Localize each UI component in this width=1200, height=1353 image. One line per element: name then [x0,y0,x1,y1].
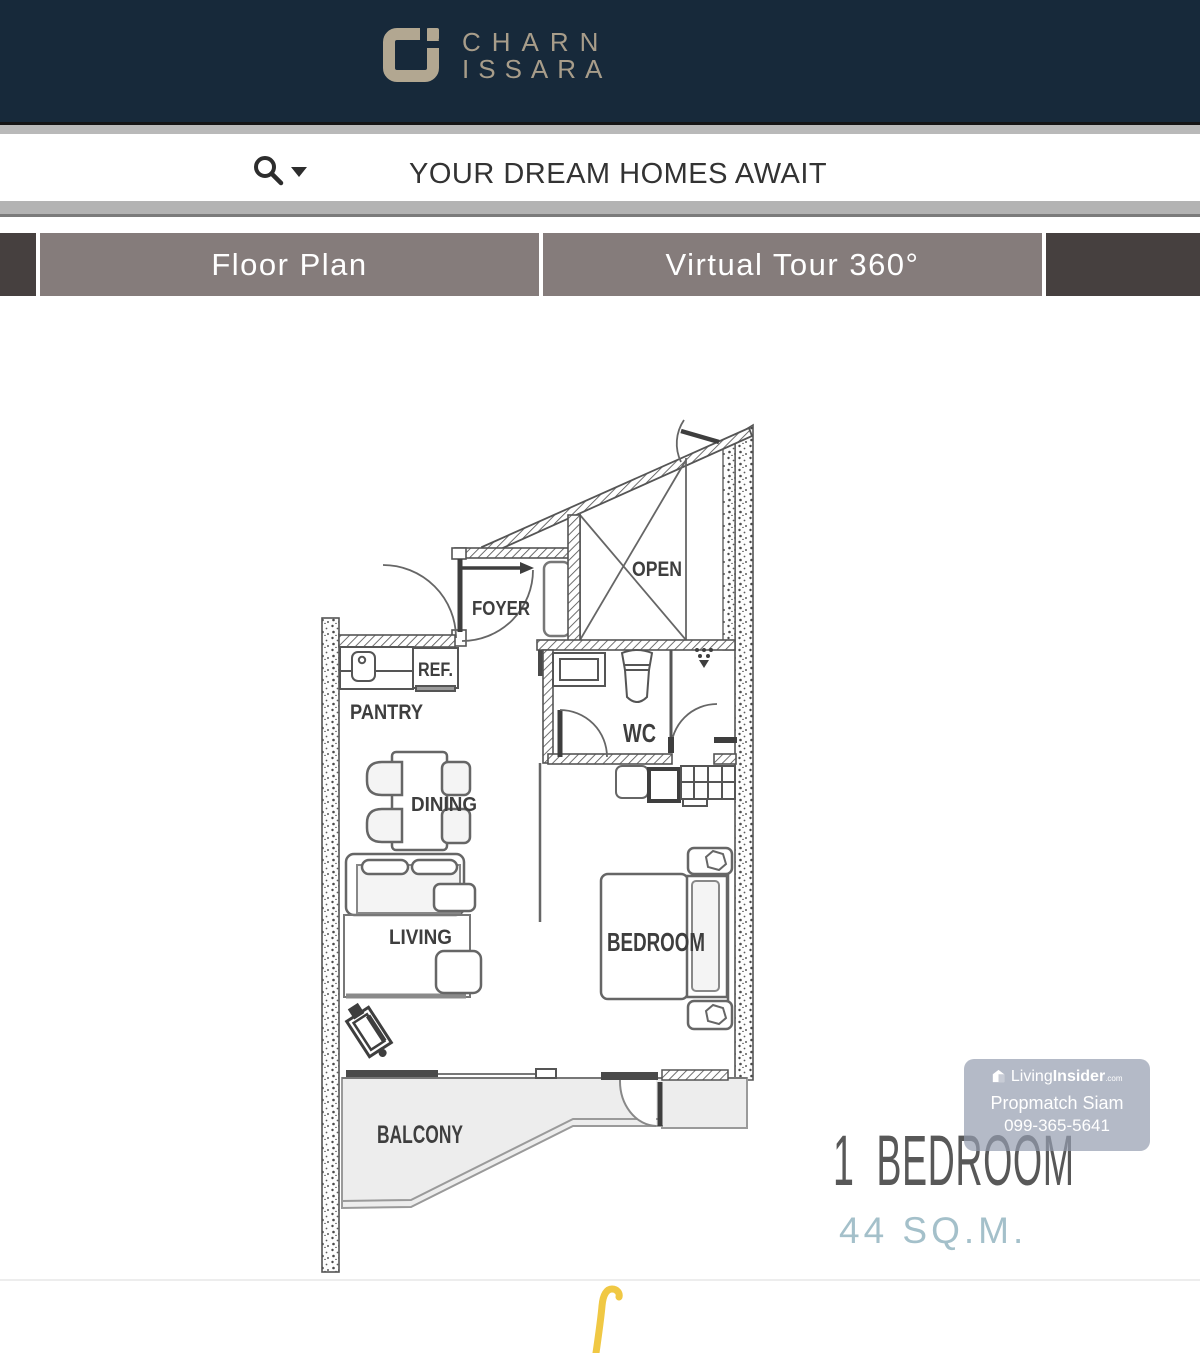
svg-text:OPEN: OPEN [632,558,682,581]
svg-text:BALCONY: BALCONY [377,1121,463,1149]
svg-text:DINING: DINING [411,794,477,816]
svg-text:LIVING: LIVING [389,926,452,949]
svg-text:WC: WC [623,718,656,748]
svg-text:REF.: REF. [418,660,453,681]
svg-text:BEDROOM: BEDROOM [607,927,705,957]
svg-text:FOYER: FOYER [472,598,530,620]
svg-text:PANTRY: PANTRY [350,701,423,724]
